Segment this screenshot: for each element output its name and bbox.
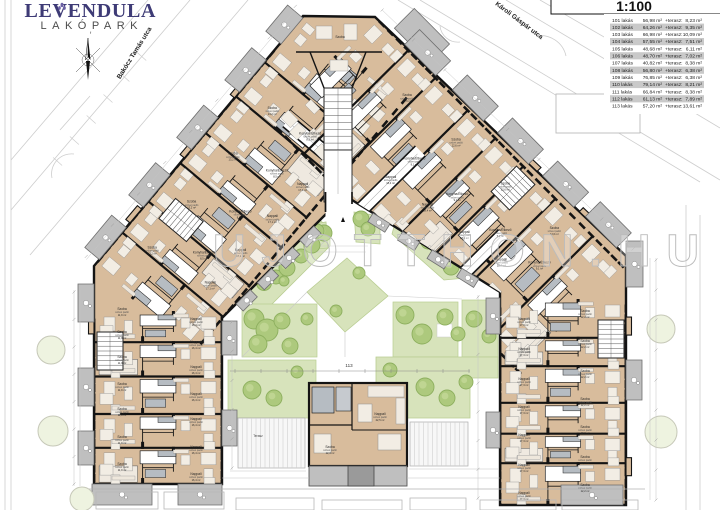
svg-text:11,9 m²: 11,9 m²	[118, 336, 127, 340]
svg-text:22,5 m²: 22,5 m²	[376, 418, 385, 422]
svg-text:17,3 m²: 17,3 m²	[520, 323, 529, 327]
svg-text:12,6 m²: 12,6 m²	[501, 188, 510, 192]
svg-text:+terasz:: +terasz:	[665, 39, 683, 45]
svg-text:17,3 m²: 17,3 m²	[520, 439, 529, 443]
svg-text:6,38 m²: 6,38 m²	[685, 68, 702, 74]
svg-text:57,55 m²: 57,55 m²	[643, 39, 663, 45]
svg-text:8,23 m²: 8,23 m²	[685, 18, 702, 24]
svg-text:12,3 m²: 12,3 m²	[326, 451, 335, 455]
svg-text:17,1 m²: 17,1 m²	[298, 188, 307, 192]
svg-text:10,09 m²: 10,09 m²	[683, 32, 703, 38]
svg-text:111 lakás: 111 lakás	[612, 89, 633, 95]
svg-text:8,5 m²: 8,5 m²	[237, 215, 244, 219]
svg-text:12,2 m²: 12,2 m²	[581, 315, 590, 319]
svg-text:Szoba: Szoba	[335, 35, 345, 39]
svg-text:79,14 m²: 79,14 m²	[643, 82, 663, 88]
svg-text:13,2 m²: 13,2 m²	[187, 206, 196, 210]
svg-text:+terasz:: +terasz:	[665, 18, 683, 24]
svg-text:LEVENDULA: LEVENDULA	[25, 0, 157, 22]
svg-text:12,2 m²: 12,2 m²	[581, 431, 590, 435]
svg-text:109 lakás: 109 lakás	[612, 75, 633, 81]
svg-text:8,5 m²: 8,5 m²	[273, 175, 280, 179]
svg-text:8,5 m²: 8,5 m²	[200, 256, 207, 260]
svg-text:16,4 m²: 16,4 m²	[192, 451, 201, 455]
svg-text:107 lakás: 107 lakás	[612, 61, 633, 67]
svg-text:13,2 m²: 13,2 m²	[148, 252, 157, 256]
svg-text:66,84 m²: 66,84 m²	[643, 89, 663, 95]
svg-text:16,4 m²: 16,4 m²	[192, 423, 201, 427]
svg-text:12,6 m²: 12,6 m²	[452, 143, 461, 147]
svg-text:+terasz:: +terasz:	[665, 75, 683, 81]
svg-text:+terasz:: +terasz:	[665, 104, 683, 110]
svg-text:113 lakás: 113 lakás	[612, 104, 633, 110]
svg-text:7,02 m²: 7,02 m²	[685, 54, 702, 60]
svg-text:+terasz:: +terasz:	[665, 89, 683, 95]
svg-text:48,68 m²: 48,68 m²	[643, 46, 663, 52]
svg-text:12,2 m²: 12,2 m²	[581, 403, 590, 407]
svg-text:13,61 m²: 13,61 m²	[683, 104, 703, 110]
svg-text:+terasz:: +terasz:	[665, 32, 683, 38]
svg-text:6,38 m²: 6,38 m²	[685, 75, 702, 81]
svg-text:56,98 m²: 56,98 m²	[643, 18, 663, 24]
svg-text:112 lakás: 112 lakás	[612, 97, 633, 103]
svg-text:+terasz:: +terasz:	[665, 82, 683, 88]
svg-text:16,4 m²: 16,4 m²	[192, 371, 201, 375]
svg-text:UJOTTHON.HU: UJOTTHON.HU	[213, 225, 701, 276]
svg-text:61,13 m²: 61,13 m²	[643, 97, 663, 103]
svg-text:113: 113	[345, 363, 353, 368]
svg-text:110 lakás: 110 lakás	[612, 82, 633, 88]
svg-text:+terasz:: +terasz:	[665, 61, 683, 67]
svg-text:17,3 m²: 17,3 m²	[520, 383, 529, 387]
svg-text:17,1 m²: 17,1 m²	[206, 286, 215, 290]
svg-text:17,1 m²: 17,1 m²	[268, 220, 277, 224]
svg-text:13,2 m²: 13,2 m²	[268, 112, 277, 116]
svg-text:11,9 m²: 11,9 m²	[118, 441, 127, 445]
svg-text:106 lakás: 106 lakás	[612, 54, 633, 60]
svg-text:8,38 m²: 8,38 m²	[685, 61, 702, 67]
svg-text:17,3 m²: 17,3 m²	[520, 353, 529, 357]
svg-text:+terasz:: +terasz:	[665, 25, 683, 31]
svg-text:17,3 m²: 17,3 m²	[520, 469, 529, 473]
svg-text:105 lakás: 105 lakás	[612, 46, 633, 52]
svg-text:17,3 m²: 17,3 m²	[520, 411, 529, 415]
svg-text:40,82 m²: 40,82 m²	[643, 61, 663, 67]
svg-text:+terasz:: +terasz:	[665, 54, 683, 60]
svg-text:1:100: 1:100	[616, 0, 652, 14]
svg-text:6,11 m²: 6,11 m²	[686, 46, 703, 52]
svg-text:16,4 m²: 16,4 m²	[192, 346, 201, 350]
svg-text:7,51 m²: 7,51 m²	[685, 39, 702, 45]
svg-text:8,5 m²: 8,5 m²	[306, 137, 313, 141]
svg-text:11,9 m²: 11,9 m²	[118, 313, 127, 317]
svg-text:11,9 m²: 11,9 m²	[118, 388, 127, 392]
svg-text:48,70 m²: 48,70 m²	[643, 54, 663, 60]
svg-text:12,2 m²: 12,2 m²	[581, 461, 590, 465]
svg-text:9,35 m²: 9,35 m²	[685, 25, 702, 31]
svg-text:11,9 m²: 11,9 m²	[118, 361, 127, 365]
svg-text:57,20 m²: 57,20 m²	[643, 104, 663, 110]
svg-text:108 lakás: 108 lakás	[612, 68, 633, 74]
svg-text:+terasz:: +terasz:	[665, 68, 683, 74]
svg-text:18,4 m²: 18,4 m²	[386, 181, 395, 185]
svg-text:102 lakás: 102 lakás	[612, 25, 633, 31]
svg-text:11,9 m²: 11,9 m²	[118, 468, 127, 472]
svg-text:16,4 m²: 16,4 m²	[192, 478, 201, 482]
svg-text:9,1 m²: 9,1 m²	[411, 162, 418, 166]
svg-text:9,1 m²: 9,1 m²	[454, 198, 461, 202]
svg-text:12,2 m²: 12,2 m²	[581, 489, 590, 493]
svg-text:11,9 m²: 11,9 m²	[118, 413, 127, 417]
svg-text:56,80 m²: 56,80 m²	[643, 68, 663, 74]
svg-text:76,85 m²: 76,85 m²	[643, 75, 663, 81]
svg-text:103 lakás: 103 lakás	[612, 32, 633, 38]
svg-text:104 lakás: 104 lakás	[612, 39, 633, 45]
svg-text:Terasz: Terasz	[253, 434, 263, 438]
svg-text:16,4 m²: 16,4 m²	[192, 398, 201, 402]
svg-text:12,6 m²: 12,6 m²	[403, 99, 412, 103]
svg-text:66,98 m²: 66,98 m²	[643, 32, 663, 38]
svg-text:8,38 m²: 8,38 m²	[685, 89, 702, 95]
svg-text:13,2 m²: 13,2 m²	[229, 158, 238, 162]
svg-text:101 lakás: 101 lakás	[612, 18, 633, 24]
svg-text:16,4 m²: 16,4 m²	[192, 323, 201, 327]
svg-text:18,4 m²: 18,4 m²	[423, 209, 432, 213]
svg-text:64,26 m²: 64,26 m²	[643, 25, 663, 31]
svg-text:8,21 m²: 8,21 m²	[685, 82, 702, 88]
svg-text:12,2 m²: 12,2 m²	[581, 345, 590, 349]
svg-text:+terasz:: +terasz:	[665, 46, 683, 52]
svg-text:7,89 m²: 7,89 m²	[685, 97, 702, 103]
svg-text:+terasz:: +terasz:	[665, 97, 683, 103]
svg-text:12,2 m²: 12,2 m²	[581, 375, 590, 379]
